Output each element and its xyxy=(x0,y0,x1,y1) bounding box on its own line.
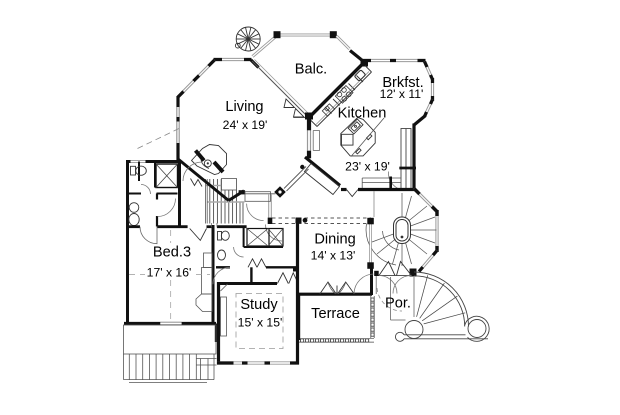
svg-text:Living: Living xyxy=(225,99,263,115)
svg-text:Balc.: Balc. xyxy=(295,62,327,78)
svg-text:15' x 15': 15' x 15' xyxy=(238,316,283,330)
svg-text:12' x 11': 12' x 11' xyxy=(380,87,424,101)
svg-text:Bed.3: Bed.3 xyxy=(153,245,191,261)
svg-text:Kitchen: Kitchen xyxy=(338,106,387,122)
svg-text:17' x 16': 17' x 16' xyxy=(147,266,192,280)
svg-text:Dining: Dining xyxy=(314,232,355,248)
svg-text:14' x 13': 14' x 13' xyxy=(311,249,356,263)
svg-text:Por.: Por. xyxy=(385,296,411,312)
svg-text:24' x 19': 24' x 19' xyxy=(223,118,268,132)
svg-text:Terrace: Terrace xyxy=(311,306,360,322)
svg-text:23' x 19': 23' x 19' xyxy=(345,160,390,174)
svg-text:Study: Study xyxy=(240,297,278,313)
